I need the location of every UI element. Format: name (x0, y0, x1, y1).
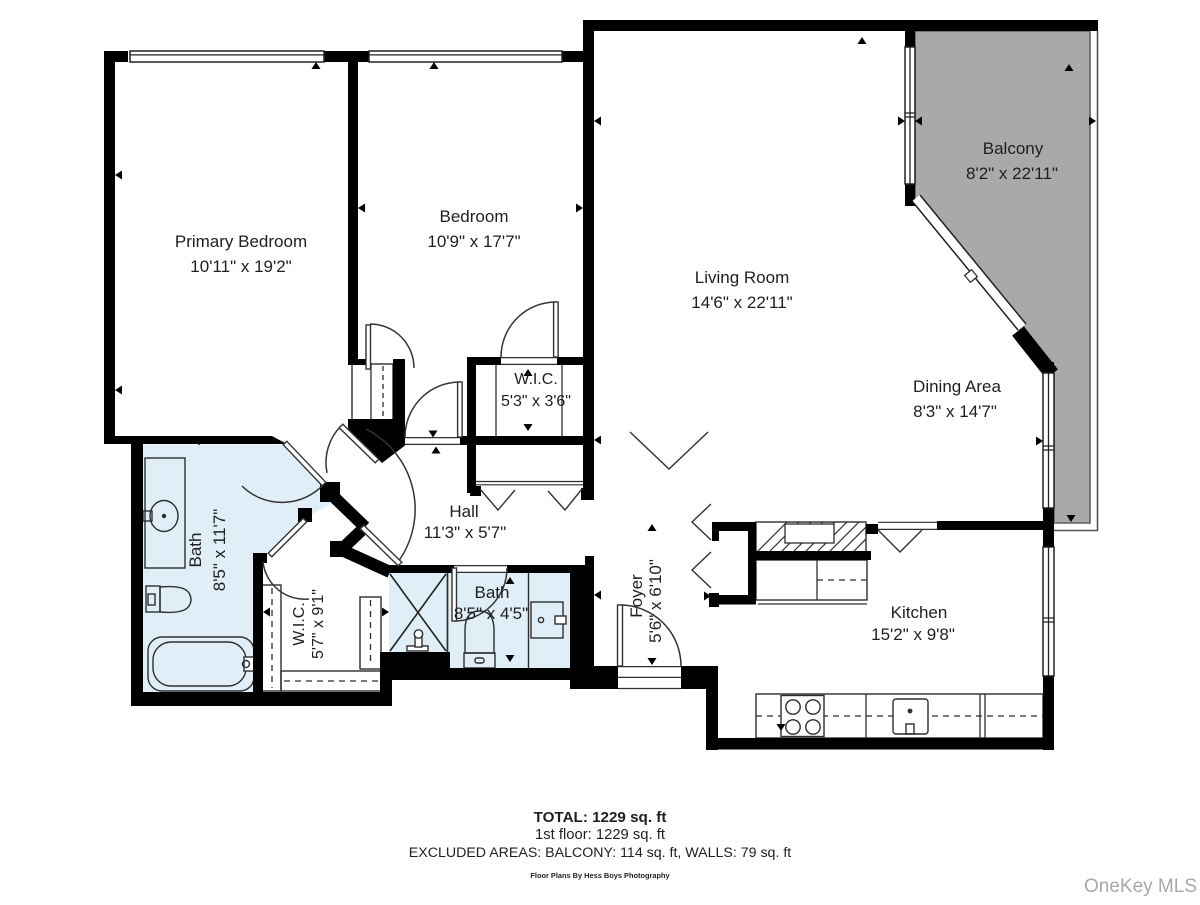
svg-text:Balcony: Balcony (983, 139, 1044, 158)
svg-text:14'6" x 22'11": 14'6" x 22'11" (691, 293, 792, 312)
svg-text:Floor Plans By Hess Boys Photo: Floor Plans By Hess Boys Photography (530, 871, 670, 880)
svg-text:5'7" x 9'1": 5'7" x 9'1" (310, 589, 327, 659)
svg-text:W.I.C.: W.I.C. (514, 371, 558, 388)
svg-text:EXCLUDED AREAS: BALCONY: 114 s: EXCLUDED AREAS: BALCONY: 114 sq. ft, WAL… (409, 845, 791, 861)
svg-text:15'2" x 9'8": 15'2" x 9'8" (871, 625, 955, 644)
svg-text:5'6" x 6'10": 5'6" x 6'10" (646, 559, 665, 643)
svg-text:Dining Area: Dining Area (913, 377, 1001, 396)
svg-text:Bedroom: Bedroom (440, 207, 509, 226)
svg-text:Kitchen: Kitchen (891, 603, 948, 622)
svg-text:Foyer: Foyer (627, 574, 646, 618)
svg-text:1st floor: 1229 sq. ft: 1st floor: 1229 sq. ft (535, 827, 665, 843)
svg-text:W.I.C.: W.I.C. (291, 602, 308, 646)
svg-text:10'9" x 17'7": 10'9" x 17'7" (427, 232, 520, 251)
svg-text:Bath: Bath (475, 583, 510, 602)
svg-text:Bath: Bath (186, 533, 205, 568)
svg-text:10'11" x 19'2": 10'11" x 19'2" (190, 257, 291, 276)
svg-text:5'3" x 3'6": 5'3" x 3'6" (501, 393, 571, 410)
svg-text:TOTAL: 1229 sq. ft: TOTAL: 1229 sq. ft (534, 809, 667, 826)
svg-text:8'5" x 11'7": 8'5" x 11'7" (210, 509, 229, 592)
svg-text:Living Room: Living Room (695, 268, 790, 287)
svg-text:Primary Bedroom: Primary Bedroom (175, 232, 307, 251)
svg-text:OneKey MLS: OneKey MLS (1084, 876, 1197, 897)
svg-text:8'5" x 4'5": 8'5" x 4'5" (454, 604, 528, 623)
svg-text:Hall: Hall (449, 502, 478, 521)
svg-text:11'3" x 5'7": 11'3" x 5'7" (424, 523, 507, 542)
svg-text:8'3" x 14'7": 8'3" x 14'7" (913, 402, 997, 421)
svg-text:8'2" x 22'11": 8'2" x 22'11" (966, 164, 1058, 183)
